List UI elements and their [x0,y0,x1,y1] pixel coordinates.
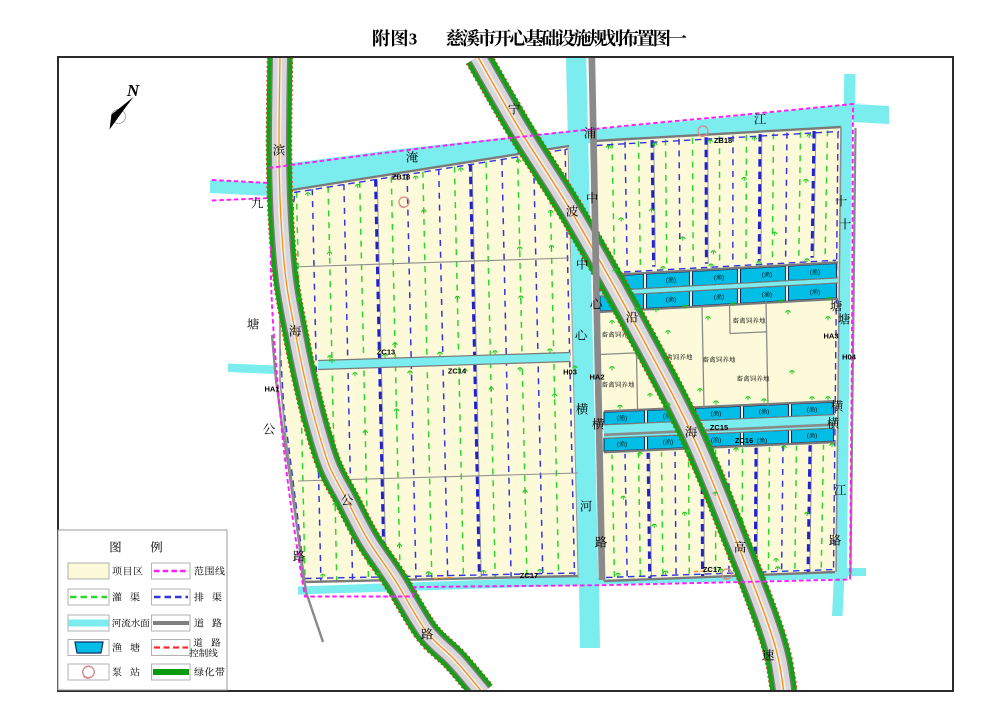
svg-text:ZB18: ZB18 [392,173,410,182]
svg-text:H03: H03 [563,368,577,377]
svg-text:ZC15: ZC15 [710,423,728,432]
svg-text:ZC17: ZC17 [703,565,721,574]
svg-text:N: N [126,81,140,100]
svg-text:HA1: HA1 [264,385,279,394]
svg-text:H04: H04 [842,353,857,362]
svg-text:ZB18: ZB18 [714,136,732,145]
svg-text:ZC13: ZC13 [377,348,395,357]
svg-text:ZC16: ZC16 [735,436,753,445]
svg-text:ZC14: ZC14 [448,367,467,376]
svg-text:ZC17: ZC17 [520,571,538,580]
svg-text:3: 3 [409,30,418,49]
svg-text:HA3: HA3 [823,332,838,341]
svg-text:HA2: HA2 [589,373,604,382]
